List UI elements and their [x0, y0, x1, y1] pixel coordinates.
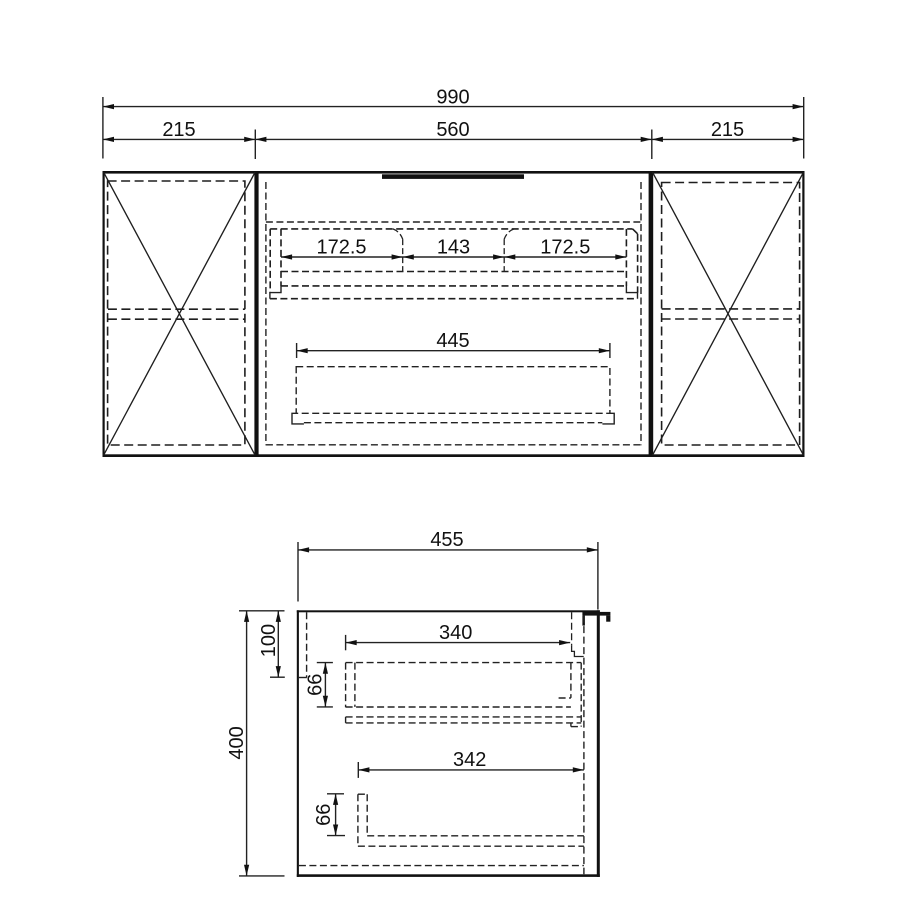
svg-text:342: 342 — [453, 749, 486, 771]
svg-text:990: 990 — [436, 87, 469, 109]
svg-text:215: 215 — [162, 119, 195, 141]
svg-text:66: 66 — [313, 804, 335, 826]
svg-text:445: 445 — [436, 330, 469, 352]
svg-text:143: 143 — [437, 236, 470, 258]
svg-text:100: 100 — [258, 624, 280, 657]
svg-text:455: 455 — [430, 529, 463, 551]
svg-text:66: 66 — [305, 674, 327, 696]
svg-text:172.5: 172.5 — [316, 236, 366, 258]
svg-text:172.5: 172.5 — [540, 236, 590, 258]
svg-text:560: 560 — [436, 119, 469, 141]
svg-text:400: 400 — [226, 726, 248, 759]
svg-text:340: 340 — [439, 622, 472, 644]
svg-text:215: 215 — [711, 119, 744, 141]
